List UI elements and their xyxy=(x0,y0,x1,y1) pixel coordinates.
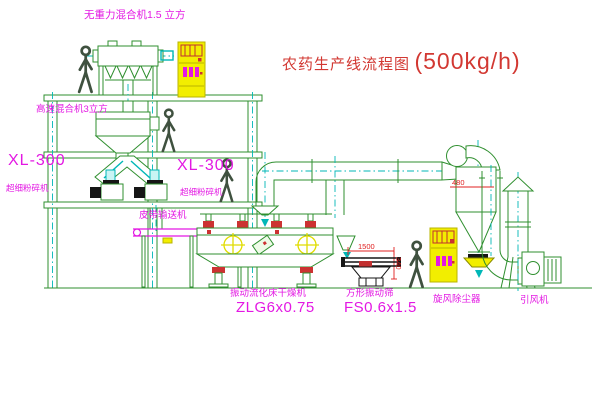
worker-ground xyxy=(410,242,422,287)
label-sieve-name: 方形振动筛 xyxy=(346,289,394,299)
label-mill-mid-name: 超细粉碎机 xyxy=(180,188,223,197)
diagram-title: 农药生产线流程图 (500kg/h) xyxy=(282,48,521,75)
dim-sieve-length: 1500 xyxy=(358,243,375,251)
label-high-speed-mixer: 高速混合机3立方 xyxy=(36,105,108,115)
cad-flow-diagram: 农药生产线流程图 (500kg/h) 无重力混合机1.5 立方 高速混合机3立方… xyxy=(0,0,600,403)
control-cabinet-right xyxy=(430,228,457,282)
label-fan: 引风机 xyxy=(520,296,549,306)
title-text: 农药生产线流程图 xyxy=(282,56,410,73)
overhead-duct xyxy=(252,152,458,227)
label-fluid-bed-name: 振动流化床干燥机 xyxy=(230,289,306,299)
label-fluid-bed-model: ZLG6x0.75 xyxy=(236,300,315,315)
label-cyclone: 旋风除尘器 xyxy=(433,295,481,305)
dim-sieve-height: 340 xyxy=(395,257,403,270)
title-capacity: (500kg/h) xyxy=(414,48,520,74)
sieve-feed-chute xyxy=(337,236,355,259)
label-mill-left-model: XL-300 xyxy=(8,153,66,169)
worker-roof xyxy=(79,47,91,92)
worker-level2 xyxy=(163,110,174,152)
control-cabinet-top xyxy=(178,42,205,97)
label-mill-mid-model: XL-300 xyxy=(177,158,235,174)
label-sieve-model: FS0.6x1.5 xyxy=(344,300,417,315)
dim-cyclone: 480 xyxy=(452,179,465,187)
label-belt-conveyor: 皮带输送机 xyxy=(139,211,187,221)
label-gravity-free-mixer: 无重力混合机1.5 立方 xyxy=(84,10,186,21)
label-mill-left-name: 超细粉碎机 xyxy=(6,184,49,193)
gravity-free-mixer xyxy=(86,41,174,95)
induced-draft-fan xyxy=(522,252,561,286)
